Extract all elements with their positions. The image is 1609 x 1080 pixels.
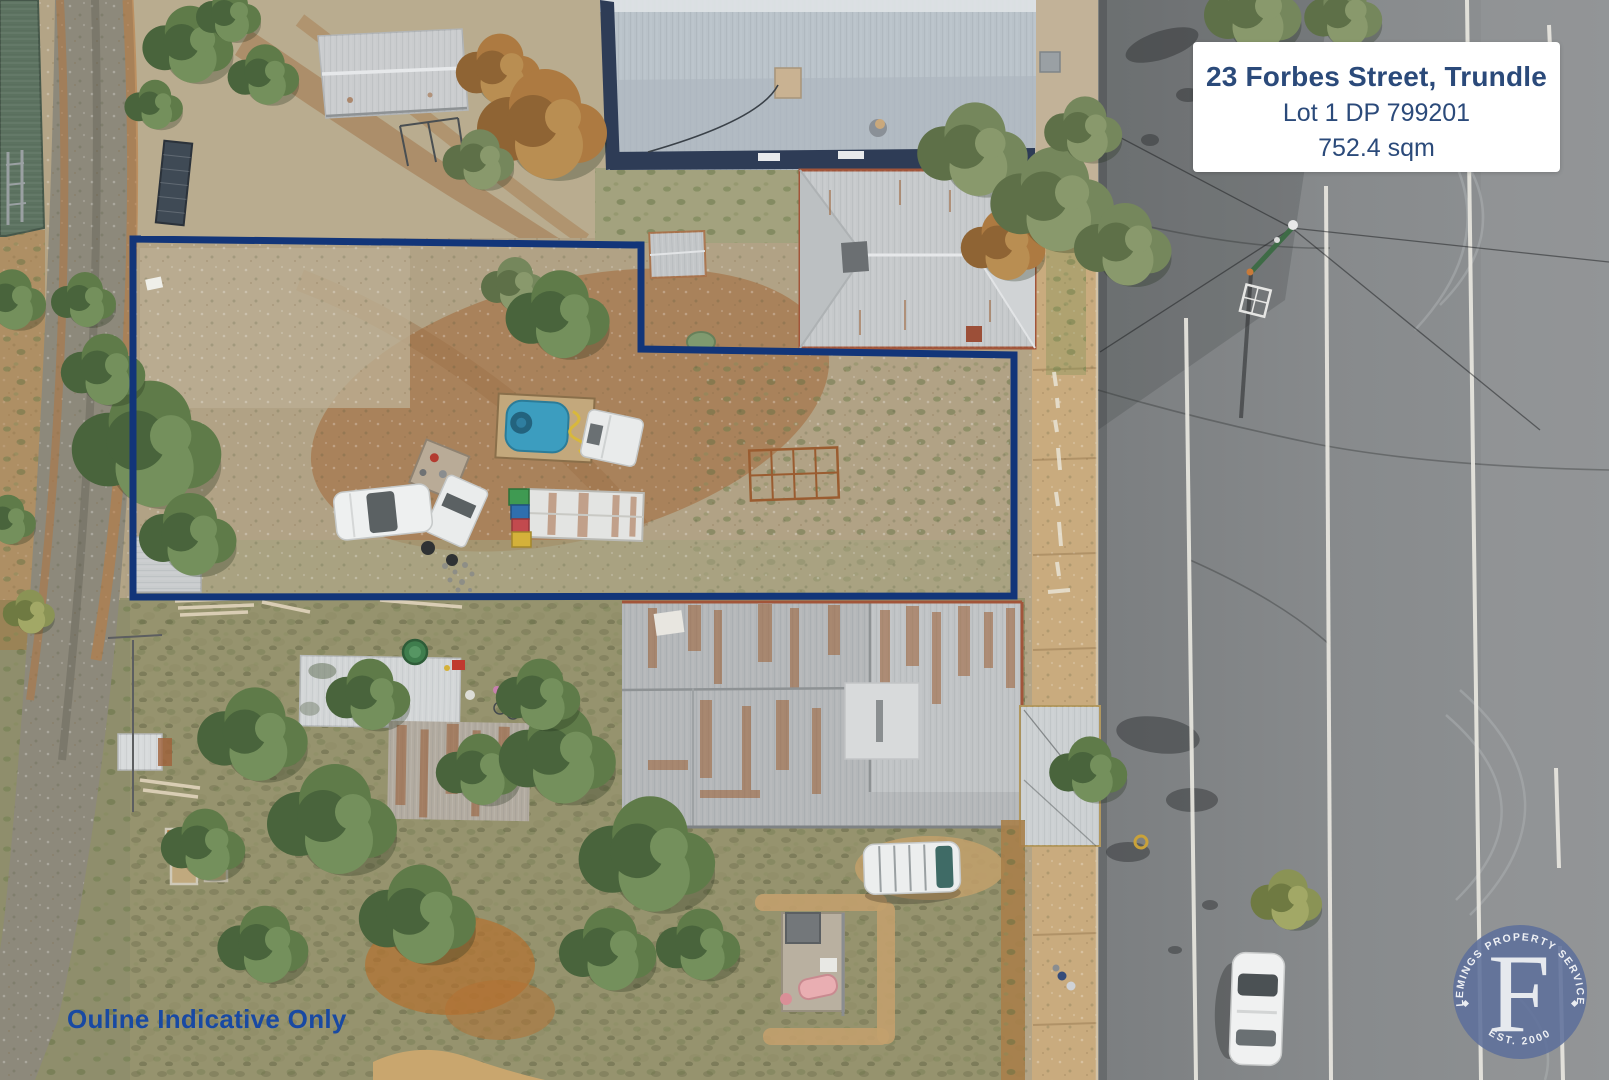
property-address: 23 Forbes Street, Trundle: [1193, 61, 1560, 93]
water-tank-trailer: [495, 394, 594, 463]
property-lot-dp: Lot 1 DP 799201: [1193, 99, 1560, 128]
tiny-white-shed: [118, 734, 172, 770]
outhouse-and-bathtub: [780, 913, 844, 1016]
white-sedan: [333, 483, 433, 541]
small-garden-shed: [649, 231, 706, 278]
white-van: [863, 841, 961, 905]
white-sheet: [654, 610, 685, 636]
flatbed-truck: [509, 489, 644, 547]
outline-disclaimer-text: Ouline Indicative Only: [67, 1004, 347, 1035]
gable-shed: [318, 29, 468, 118]
property-info-card: 23 Forbes Street, Trundle Lot 1 DP 79920…: [1193, 42, 1560, 172]
colored-crates: [509, 489, 531, 547]
rusty-roof-house-complex: [622, 602, 1022, 828]
roof-box: [775, 68, 801, 98]
property-area: 752.4 sqm: [1193, 134, 1560, 163]
green-fence-structure: [0, 0, 44, 236]
roof-ac-unit: [841, 241, 869, 273]
aerial-property-photo: FLEMINGS PROPERTY SERVICES EST. 2000 F 2…: [0, 0, 1609, 1080]
chimney: [966, 326, 982, 342]
logo-monogram: F: [1488, 932, 1550, 1056]
